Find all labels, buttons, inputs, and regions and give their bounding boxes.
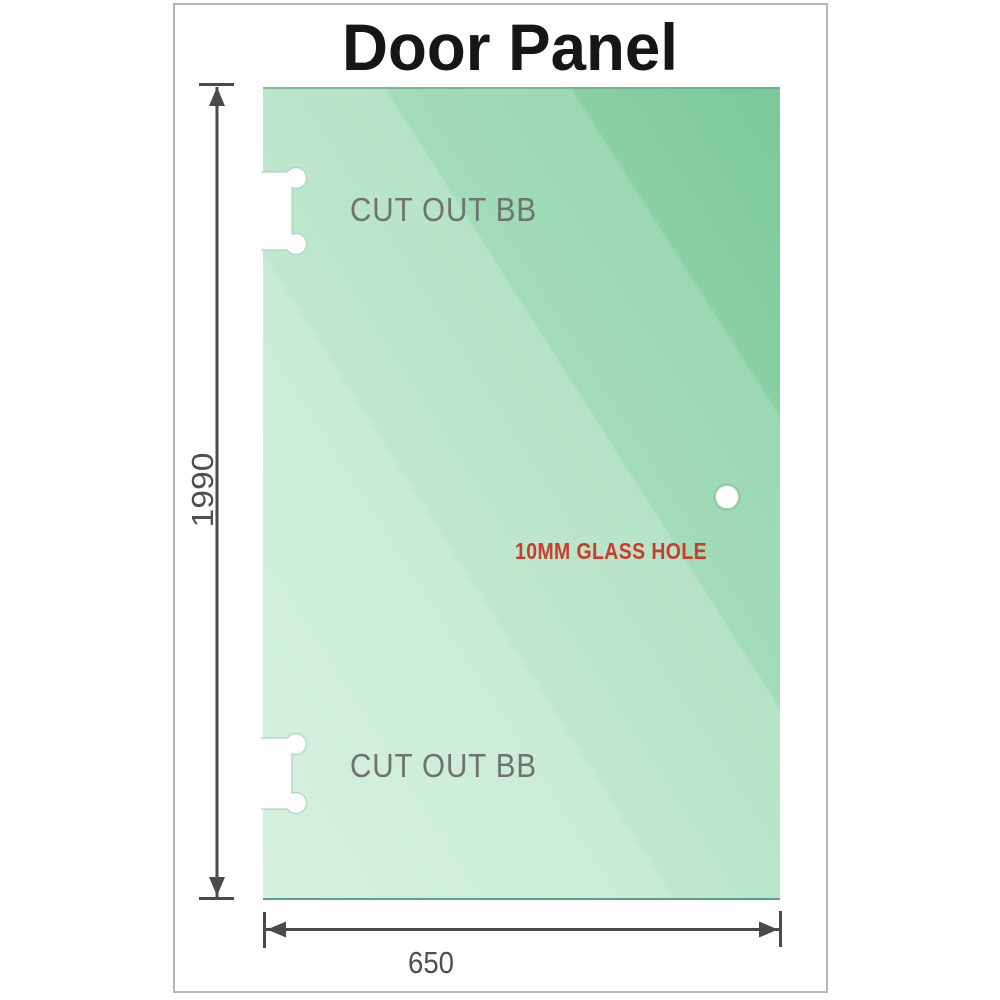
door-panel-drawing-page: Door Panel CUT OUT BB CUT OUT BB 10MM GL…	[0, 0, 1000, 1000]
page-title: Door Panel	[342, 10, 678, 84]
glass-hole-label: 10MM GLASS HOLE	[515, 538, 707, 564]
width-dimension-label: 650	[408, 945, 454, 980]
cutout-top-label: CUT OUT BB	[350, 191, 537, 228]
door-panel-diagram: Door Panel CUT OUT BB CUT OUT BB 10MM GL…	[0, 0, 1000, 1000]
cutout-bottom-label: CUT OUT BB	[350, 747, 537, 784]
glass-hole	[715, 485, 740, 510]
height-dimension-label: 1990	[185, 453, 220, 528]
